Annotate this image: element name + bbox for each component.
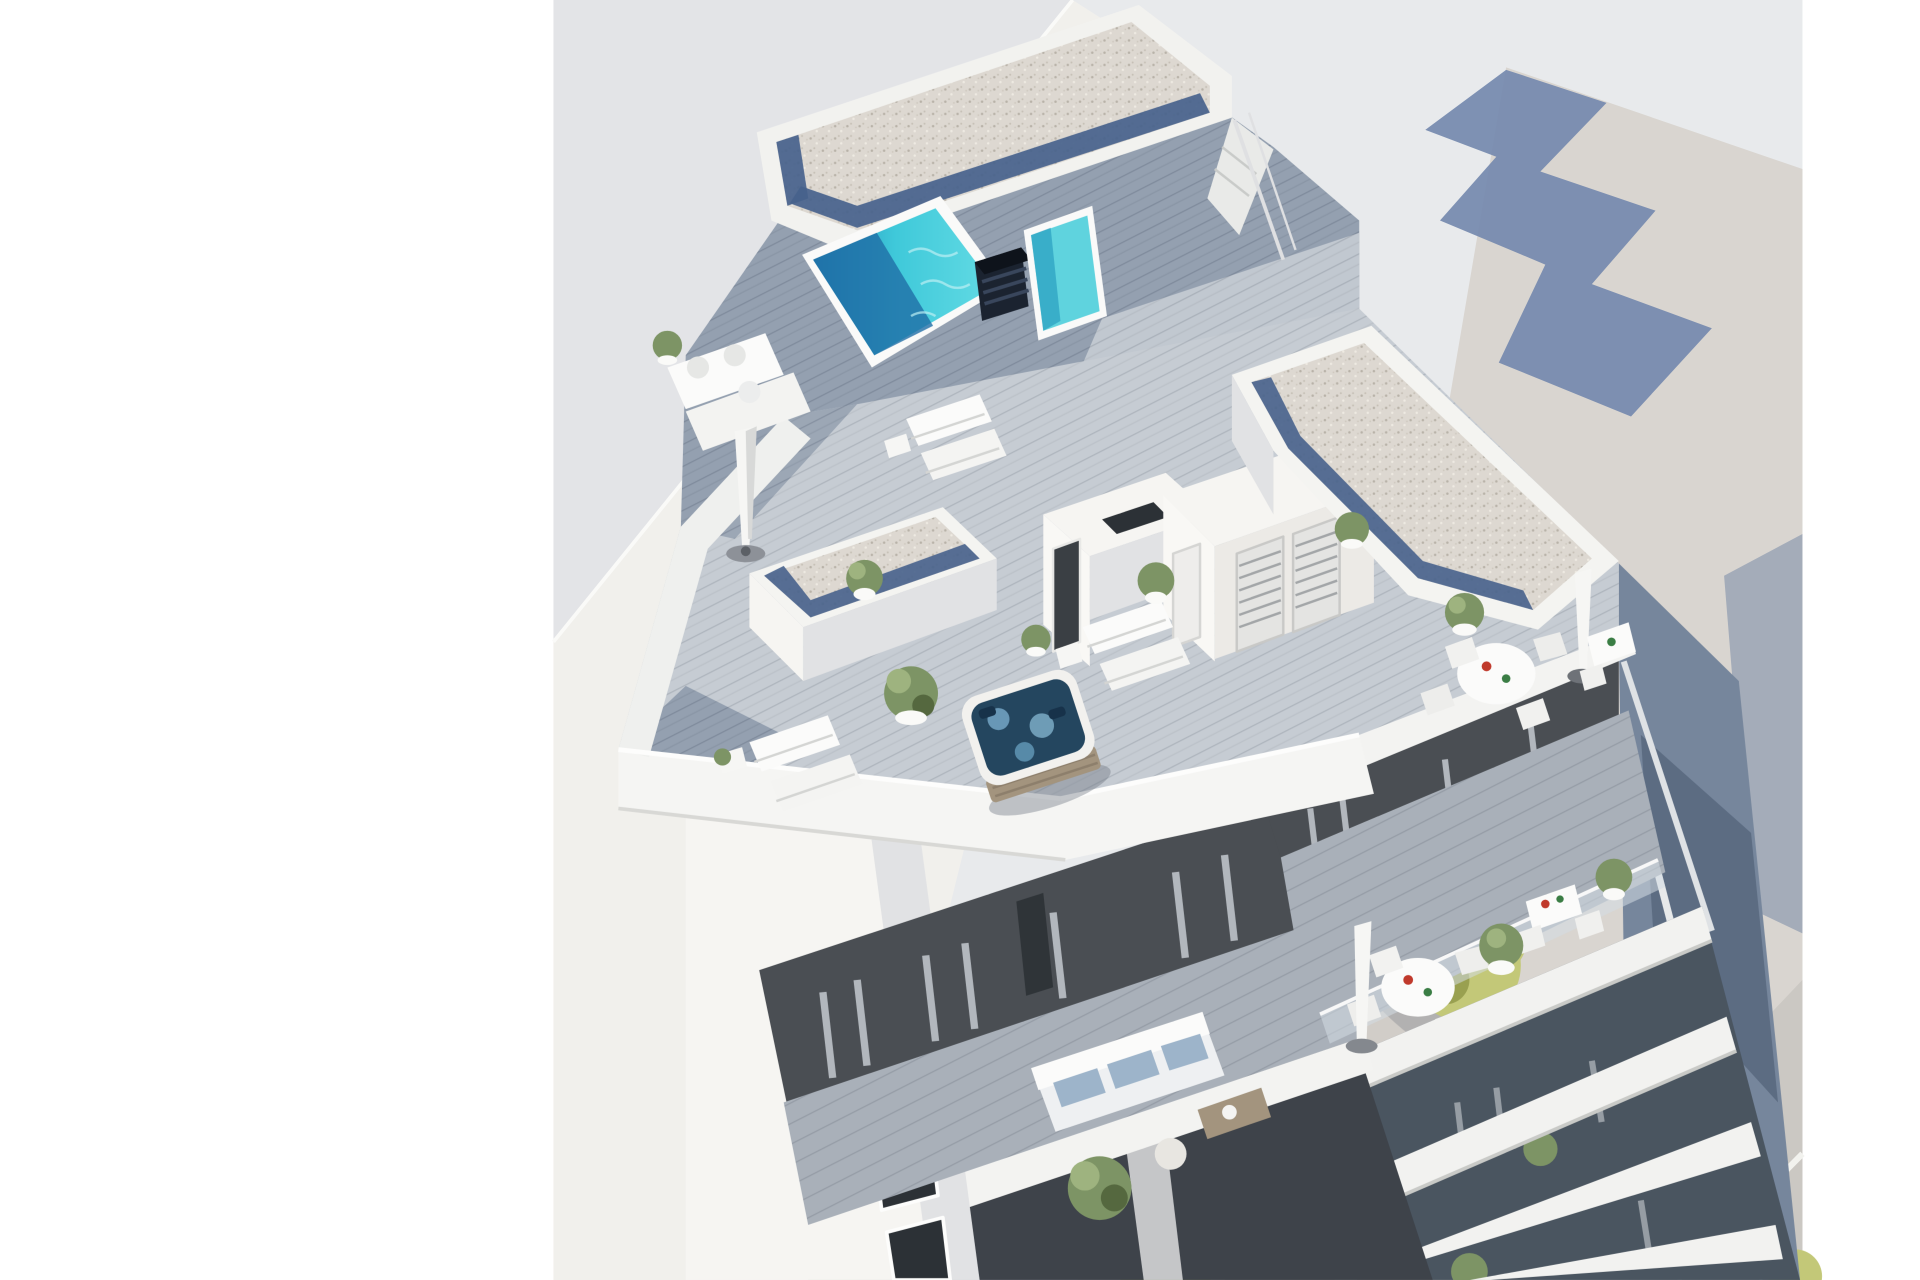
penthouse-door: [1053, 539, 1080, 652]
architectural-render: [0, 0, 1920, 1280]
balcony-plant: [1068, 1156, 1132, 1220]
pouf: [1155, 1138, 1187, 1170]
lap-pool: [1024, 206, 1107, 341]
penthouse-door: [1173, 544, 1200, 647]
render-canvas: [0, 0, 1920, 1280]
